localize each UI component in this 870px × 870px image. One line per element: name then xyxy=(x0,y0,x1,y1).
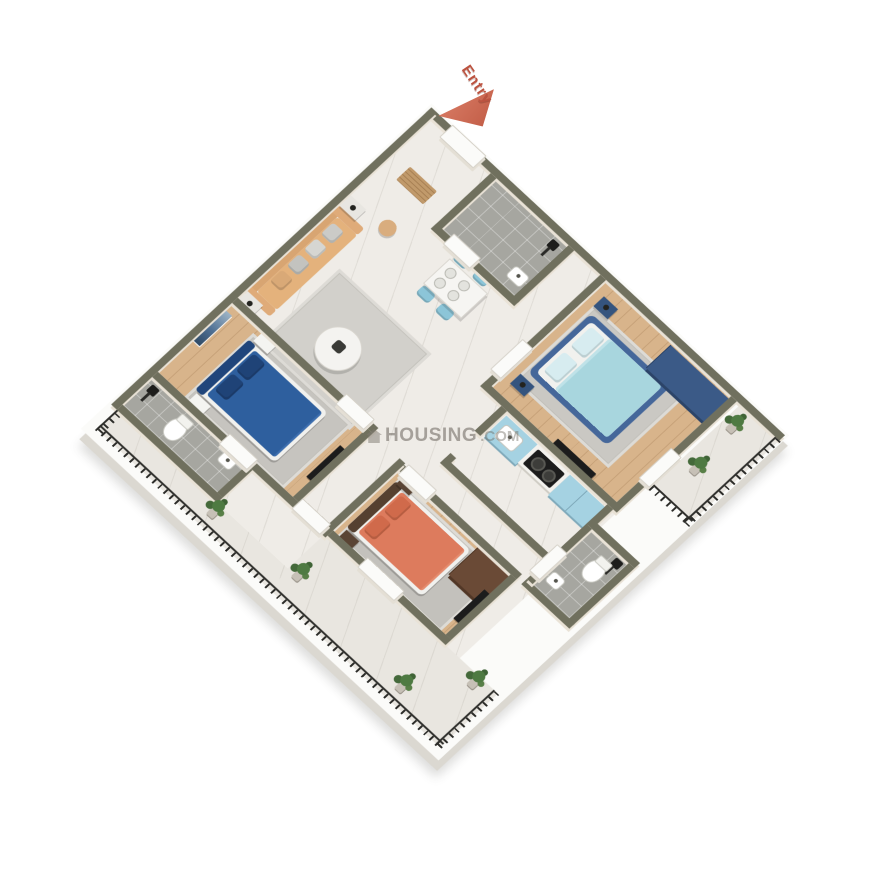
watermark-suffix-text: .COM xyxy=(480,428,519,445)
floorplan-stage: Entry HOUSING .COM xyxy=(0,0,870,870)
watermark-main-text: HOUSING xyxy=(385,425,477,447)
entry-label: Entry xyxy=(458,62,496,107)
entry-marker: Entry xyxy=(432,58,552,148)
watermark: HOUSING .COM xyxy=(366,425,519,447)
house-icon xyxy=(366,429,382,443)
